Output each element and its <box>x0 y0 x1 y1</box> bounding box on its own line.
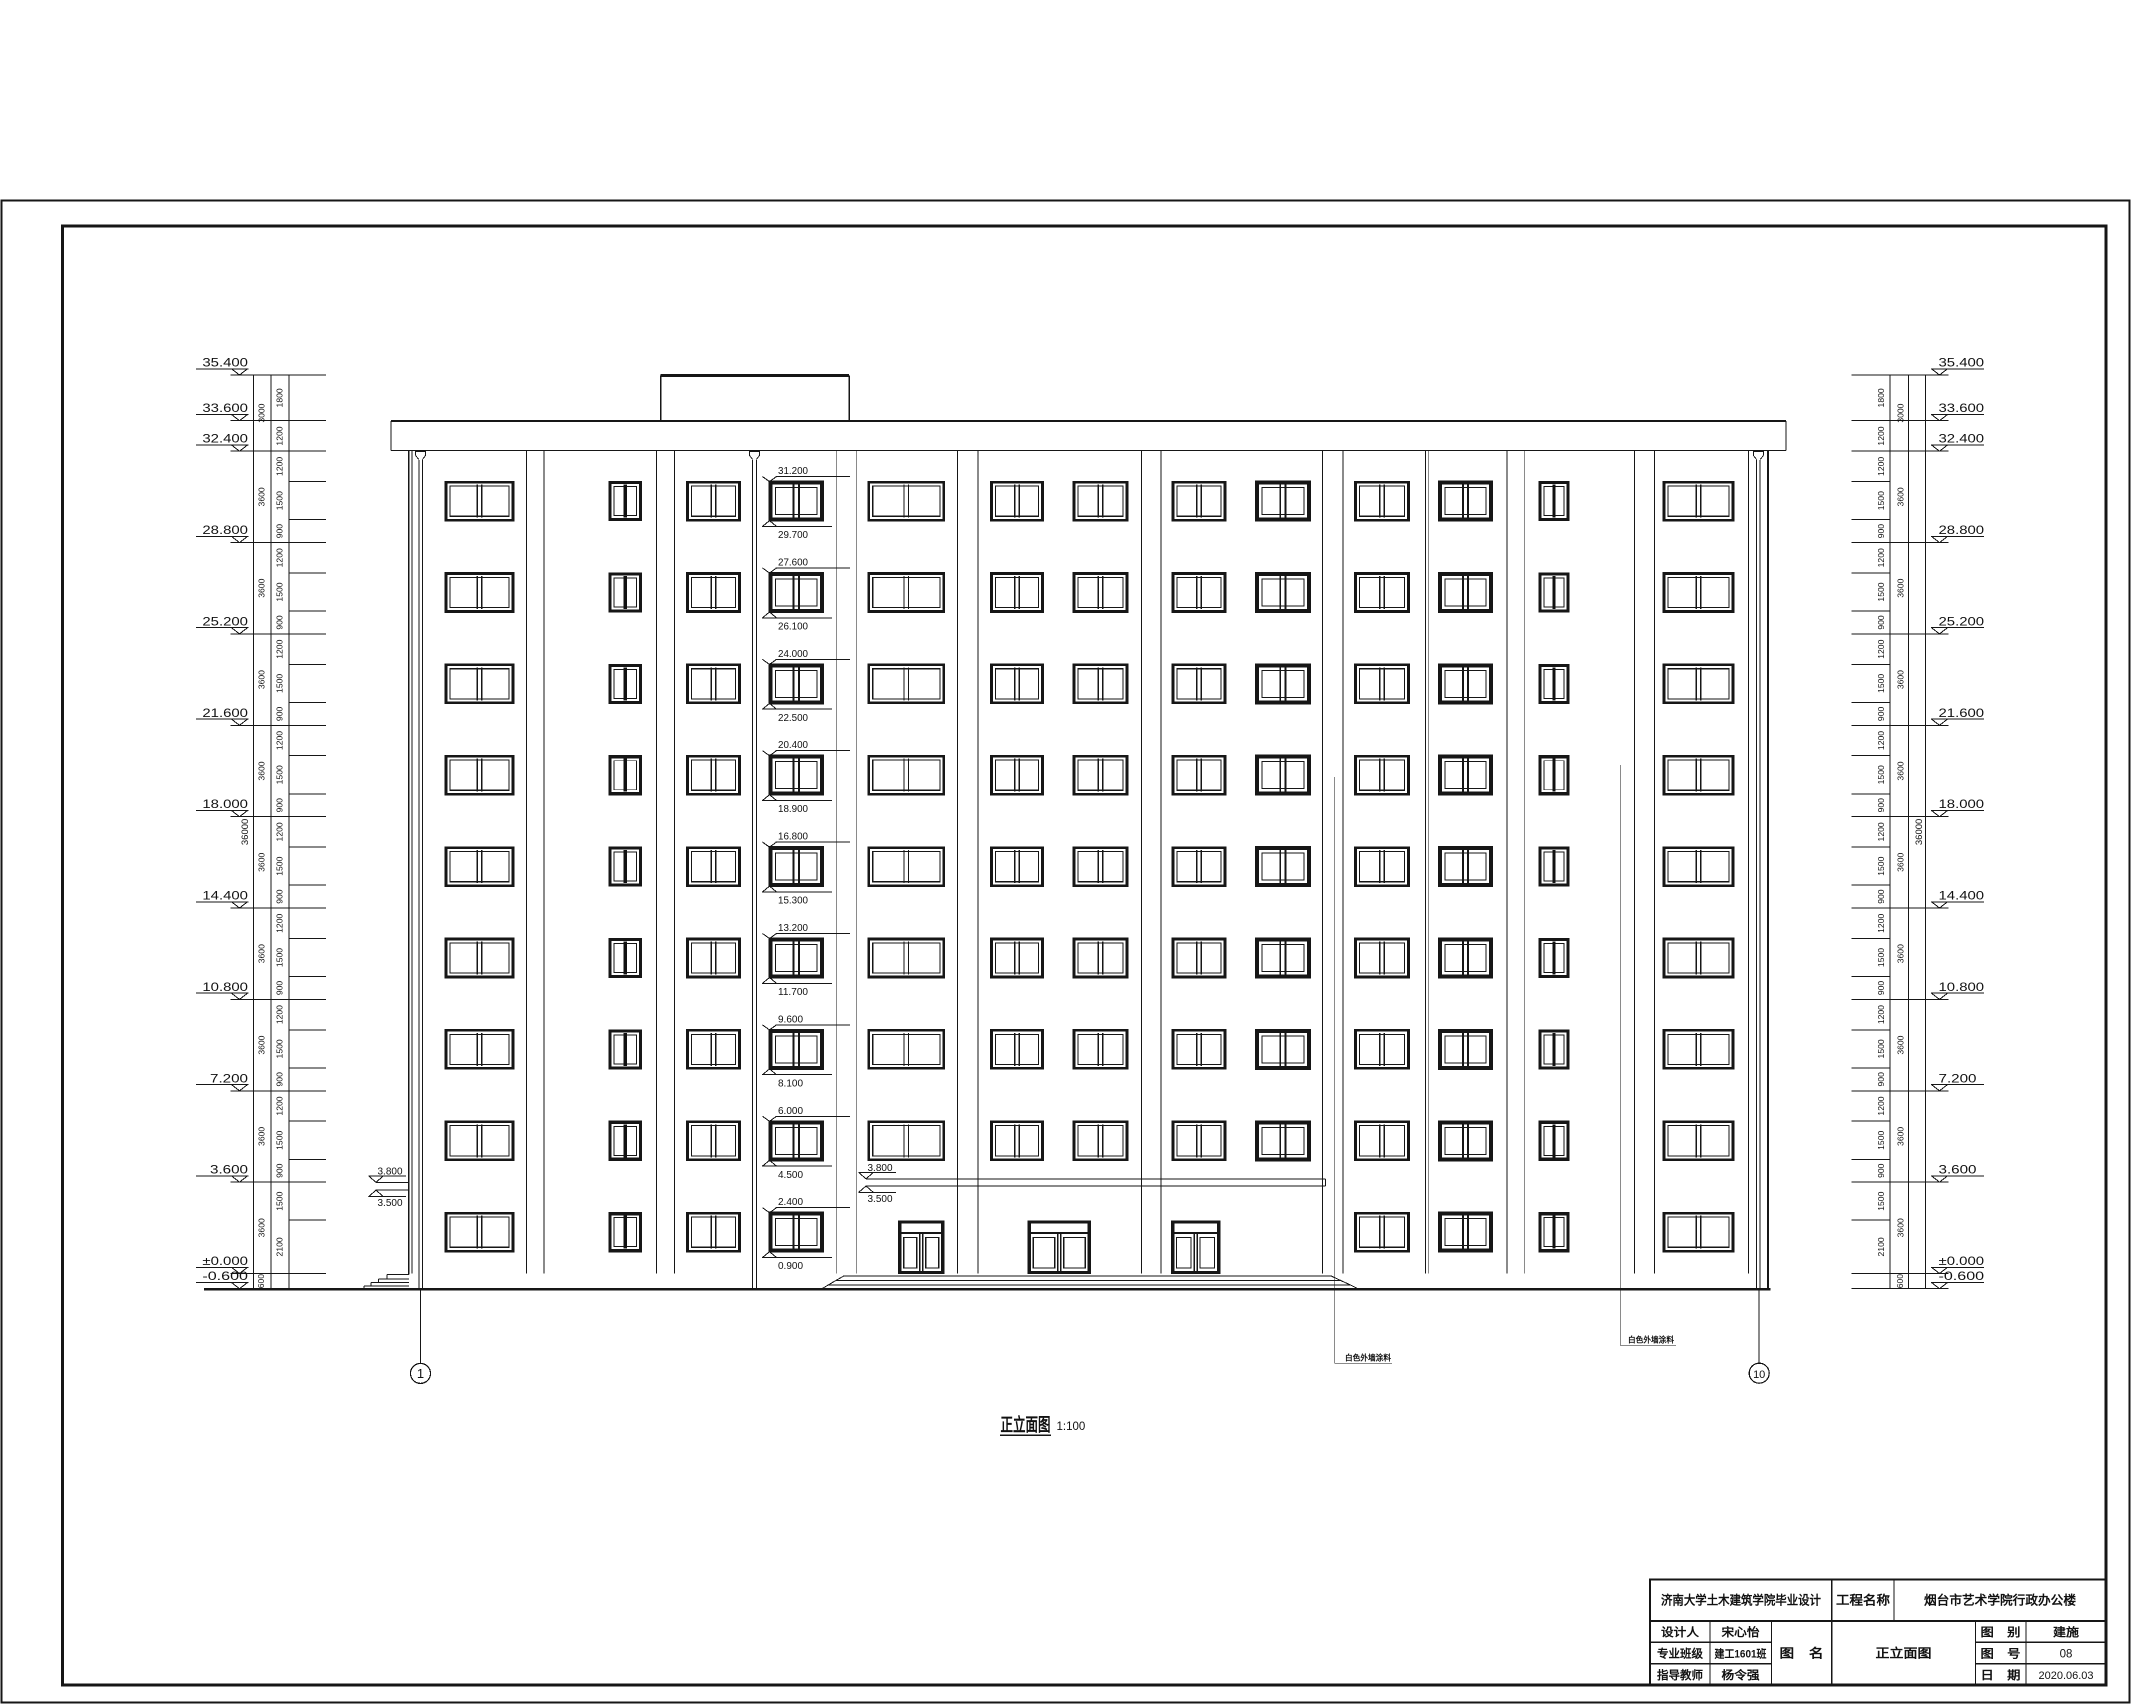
svg-text:600: 600 <box>1895 1274 1905 1288</box>
svg-text:32.400: 32.400 <box>1939 434 1985 446</box>
svg-text:08: 08 <box>2060 1649 2073 1661</box>
svg-text:图 别: 图 别 <box>1981 1625 2021 1639</box>
svg-text:设计人: 设计人 <box>1661 1625 1700 1639</box>
svg-text:1800: 1800 <box>1876 388 1886 407</box>
svg-text:28.800: 28.800 <box>1939 525 1985 537</box>
svg-text:3600: 3600 <box>256 944 266 963</box>
svg-text:9.600: 9.600 <box>778 1014 803 1025</box>
svg-text:18.000: 18.000 <box>1939 799 1985 811</box>
svg-text:指导教师: 指导教师 <box>1657 1668 1703 1682</box>
svg-text:1500: 1500 <box>274 1131 284 1150</box>
svg-text:1500: 1500 <box>1876 765 1886 784</box>
svg-text:3600: 3600 <box>1895 1218 1905 1237</box>
svg-text:3600: 3600 <box>1895 761 1905 780</box>
svg-text:1200: 1200 <box>274 548 284 567</box>
svg-text:2.400: 2.400 <box>778 1197 803 1208</box>
svg-text:18.900: 18.900 <box>778 804 808 815</box>
svg-text:1200: 1200 <box>1876 1005 1886 1024</box>
svg-text:16.800: 16.800 <box>778 832 808 843</box>
svg-text:900: 900 <box>1876 798 1886 813</box>
svg-text:36000: 36000 <box>240 819 251 845</box>
svg-text:600: 600 <box>256 1274 266 1288</box>
svg-text:14.400: 14.400 <box>1939 891 1985 903</box>
svg-text:900: 900 <box>1876 524 1886 539</box>
svg-text:2020.06.03: 2020.06.03 <box>2038 1670 2093 1682</box>
svg-text:27.600: 27.600 <box>778 558 808 569</box>
svg-text:专业班级: 专业班级 <box>1657 1647 1703 1661</box>
svg-text:3600: 3600 <box>1895 487 1905 506</box>
svg-text:900: 900 <box>274 889 284 904</box>
svg-text:1200: 1200 <box>1876 731 1886 750</box>
svg-text:3600: 3600 <box>256 1035 266 1054</box>
svg-text:2100: 2100 <box>1876 1237 1886 1256</box>
svg-text:26.100: 26.100 <box>778 622 808 633</box>
svg-text:3600: 3600 <box>256 487 266 506</box>
svg-text:2100: 2100 <box>274 1237 284 1256</box>
svg-text:图 号: 图 号 <box>1981 1647 2021 1661</box>
svg-text:900: 900 <box>1876 981 1886 996</box>
svg-text:11.700: 11.700 <box>778 987 808 998</box>
svg-text:10.800: 10.800 <box>1939 982 1985 994</box>
svg-text:3.600: 3.600 <box>1939 1165 1977 1177</box>
svg-text:6.000: 6.000 <box>778 1106 803 1117</box>
svg-text:1200: 1200 <box>274 1096 284 1115</box>
svg-text:1500: 1500 <box>274 765 284 784</box>
svg-text:3600: 3600 <box>1895 670 1905 689</box>
svg-text:18.000: 18.000 <box>202 799 248 811</box>
svg-text:1500: 1500 <box>274 674 284 693</box>
svg-text:1500: 1500 <box>274 582 284 601</box>
svg-text:正立面图: 正立面图 <box>1876 1646 1932 1661</box>
svg-text:1200: 1200 <box>1876 1096 1886 1115</box>
svg-text:4.500: 4.500 <box>778 1170 803 1181</box>
svg-text:29.700: 29.700 <box>778 530 808 541</box>
svg-text:7.200: 7.200 <box>210 1073 248 1085</box>
svg-text:3.500: 3.500 <box>378 1198 403 1209</box>
svg-text:900: 900 <box>274 524 284 539</box>
svg-text:1500: 1500 <box>274 491 284 510</box>
svg-text:白色外墙涂料: 白色外墙涂料 <box>1628 1335 1674 1345</box>
svg-text:3000: 3000 <box>256 403 266 422</box>
svg-text:21.600: 21.600 <box>1939 708 1985 720</box>
svg-text:1500: 1500 <box>1876 491 1886 510</box>
svg-text:24.000: 24.000 <box>778 649 808 660</box>
svg-text:1200: 1200 <box>1876 914 1886 933</box>
svg-text:31.200: 31.200 <box>778 466 808 477</box>
svg-text:1:100: 1:100 <box>1057 1421 1086 1433</box>
svg-text:3600: 3600 <box>256 1218 266 1237</box>
svg-text:10.800: 10.800 <box>202 982 248 994</box>
svg-text:1500: 1500 <box>1876 1131 1886 1150</box>
svg-text:正立面图: 正立面图 <box>1001 1414 1051 1435</box>
svg-text:35.400: 35.400 <box>1939 358 1985 370</box>
svg-text:3600: 3600 <box>1895 944 1905 963</box>
svg-text:3.600: 3.600 <box>210 1165 248 1177</box>
svg-text:1500: 1500 <box>274 1191 284 1210</box>
svg-text:3600: 3600 <box>1895 578 1905 597</box>
svg-text:3600: 3600 <box>256 670 266 689</box>
svg-text:3000: 3000 <box>1895 403 1905 422</box>
svg-text:32.400: 32.400 <box>202 434 248 446</box>
svg-text:0.900: 0.900 <box>778 1261 803 1272</box>
svg-text:建施: 建施 <box>2053 1625 2080 1639</box>
svg-text:3600: 3600 <box>256 761 266 780</box>
svg-text:900: 900 <box>1876 615 1886 630</box>
svg-text:1200: 1200 <box>1876 639 1886 658</box>
svg-text:-0.600: -0.600 <box>1939 1271 1985 1283</box>
svg-text:1500: 1500 <box>274 856 284 875</box>
svg-text:900: 900 <box>274 707 284 722</box>
svg-text:1200: 1200 <box>274 822 284 841</box>
svg-text:1500: 1500 <box>1876 948 1886 967</box>
svg-text:图 名: 图 名 <box>1780 1646 1824 1661</box>
svg-text:1500: 1500 <box>1876 1039 1886 1058</box>
svg-text:1200: 1200 <box>274 457 284 476</box>
svg-text:7.200: 7.200 <box>1939 1073 1977 1085</box>
svg-text:900: 900 <box>1876 889 1886 904</box>
svg-text:3600: 3600 <box>1895 853 1905 872</box>
svg-text:25.200: 25.200 <box>202 616 248 628</box>
svg-text:28.800: 28.800 <box>202 525 248 537</box>
svg-text:白色外墙涂料: 白色外墙涂料 <box>1345 1353 1391 1363</box>
svg-text:建工1601班: 建工1601班 <box>1715 1647 1767 1661</box>
svg-text:1200: 1200 <box>274 914 284 933</box>
svg-text:3600: 3600 <box>256 853 266 872</box>
svg-text:1200: 1200 <box>274 731 284 750</box>
svg-text:900: 900 <box>1876 707 1886 722</box>
svg-text:3600: 3600 <box>256 1127 266 1146</box>
svg-text:1500: 1500 <box>1876 582 1886 601</box>
svg-text:1200: 1200 <box>1876 457 1886 476</box>
svg-text:3600: 3600 <box>256 578 266 597</box>
svg-text:1800: 1800 <box>274 388 284 407</box>
svg-text:±0.000: ±0.000 <box>202 1256 248 1268</box>
svg-text:工程名称: 工程名称 <box>1836 1593 1891 1608</box>
svg-text:杨令强: 杨令强 <box>1722 1668 1761 1682</box>
svg-text:3600: 3600 <box>1895 1035 1905 1054</box>
svg-text:13.200: 13.200 <box>778 923 808 934</box>
svg-text:3600: 3600 <box>1895 1127 1905 1146</box>
svg-text:900: 900 <box>274 1163 284 1178</box>
svg-text:-0.600: -0.600 <box>202 1271 248 1283</box>
svg-text:21.600: 21.600 <box>202 708 248 720</box>
svg-text:1200: 1200 <box>274 426 284 445</box>
svg-text:900: 900 <box>274 1072 284 1087</box>
svg-text:22.500: 22.500 <box>778 713 808 724</box>
svg-text:1500: 1500 <box>1876 1191 1886 1210</box>
svg-text:900: 900 <box>1876 1163 1886 1178</box>
svg-text:900: 900 <box>274 981 284 996</box>
svg-text:济南大学土木建筑学院毕业设计: 济南大学土木建筑学院毕业设计 <box>1661 1593 1821 1608</box>
svg-text:36000: 36000 <box>1914 819 1925 845</box>
svg-text:10: 10 <box>1753 1369 1765 1381</box>
svg-text:1200: 1200 <box>1876 822 1886 841</box>
svg-text:900: 900 <box>1876 1072 1886 1087</box>
svg-text:3.500: 3.500 <box>868 1194 893 1205</box>
svg-text:20.400: 20.400 <box>778 740 808 751</box>
svg-text:1500: 1500 <box>274 1039 284 1058</box>
svg-text:8.100: 8.100 <box>778 1078 803 1089</box>
svg-text:25.200: 25.200 <box>1939 616 1985 628</box>
svg-text:900: 900 <box>274 615 284 630</box>
svg-text:1500: 1500 <box>274 948 284 967</box>
svg-text:900: 900 <box>274 798 284 813</box>
svg-text:1200: 1200 <box>274 639 284 658</box>
svg-text:1200: 1200 <box>1876 426 1886 445</box>
svg-text:35.400: 35.400 <box>202 358 248 370</box>
svg-text:1: 1 <box>417 1366 424 1381</box>
svg-text:33.600: 33.600 <box>202 403 248 415</box>
svg-text:15.300: 15.300 <box>778 896 808 907</box>
svg-text:1500: 1500 <box>1876 856 1886 875</box>
svg-text:1200: 1200 <box>274 1005 284 1024</box>
svg-text:±0.000: ±0.000 <box>1939 1256 1985 1268</box>
svg-text:烟台市艺术学院行政办公楼: 烟台市艺术学院行政办公楼 <box>1924 1593 2076 1608</box>
svg-text:14.400: 14.400 <box>202 891 248 903</box>
svg-text:1200: 1200 <box>1876 548 1886 567</box>
svg-text:宋心怡: 宋心怡 <box>1720 1625 1760 1639</box>
svg-text:33.600: 33.600 <box>1939 403 1985 415</box>
svg-text:日 期: 日 期 <box>1981 1668 2021 1682</box>
svg-text:1500: 1500 <box>1876 674 1886 693</box>
